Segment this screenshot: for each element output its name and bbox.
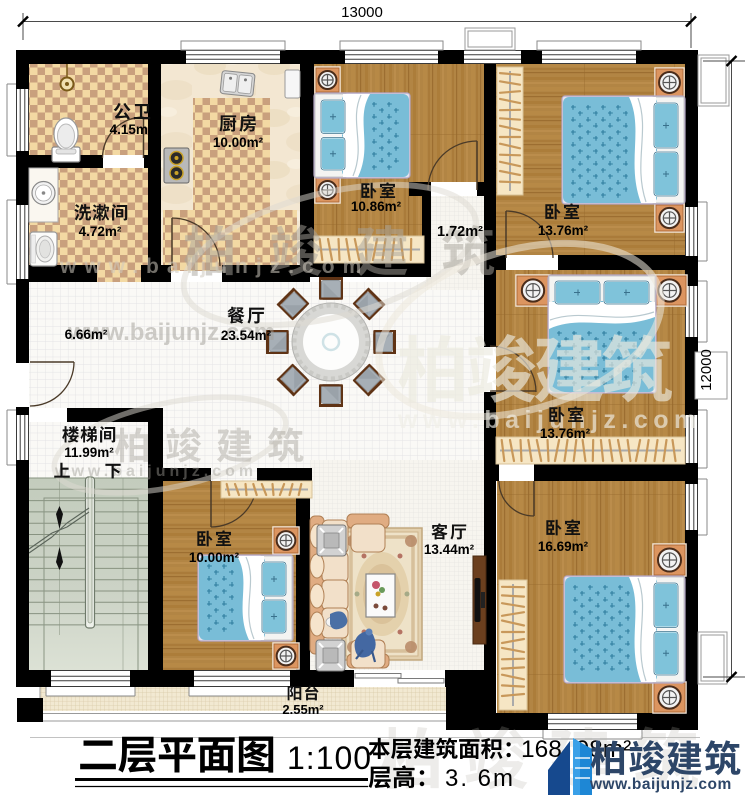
svg-text:13.76m²: 13.76m²	[540, 426, 591, 441]
svg-text:23.54m²: 23.54m²	[221, 328, 272, 343]
svg-text:4.72m²: 4.72m²	[79, 224, 122, 239]
svg-text:3. 6m: 3. 6m	[445, 765, 515, 792]
svg-text:6.66m²: 6.66m²	[65, 327, 108, 342]
svg-text:13.44m²: 13.44m²	[424, 542, 475, 557]
svg-text:13000: 13000	[341, 4, 383, 21]
svg-text:16.69m²: 16.69m²	[538, 539, 589, 554]
svg-text:4.15m²: 4.15m²	[110, 122, 153, 137]
svg-text:10.00m²: 10.00m²	[189, 550, 240, 565]
svg-text:13.76m²: 13.76m²	[538, 223, 589, 238]
svg-text:10.00m²: 10.00m²	[213, 135, 264, 150]
svg-text:12000: 12000	[698, 349, 715, 391]
svg-text:www.baijunjz.com: www.baijunjz.com	[589, 776, 732, 793]
svg-text:11.99m²: 11.99m²	[64, 445, 114, 460]
svg-text:1.72m²: 1.72m²	[437, 224, 483, 240]
svg-text:10.86m²: 10.86m²	[351, 199, 402, 214]
svg-text:www.baijunjz.com: www.baijunjz.com	[59, 255, 369, 278]
svg-text:2.55m²: 2.55m²	[282, 702, 324, 717]
svg-text:1:100: 1:100	[287, 740, 372, 776]
svg-text:www.baijunjz.com: www.baijunjz.com	[54, 463, 257, 480]
